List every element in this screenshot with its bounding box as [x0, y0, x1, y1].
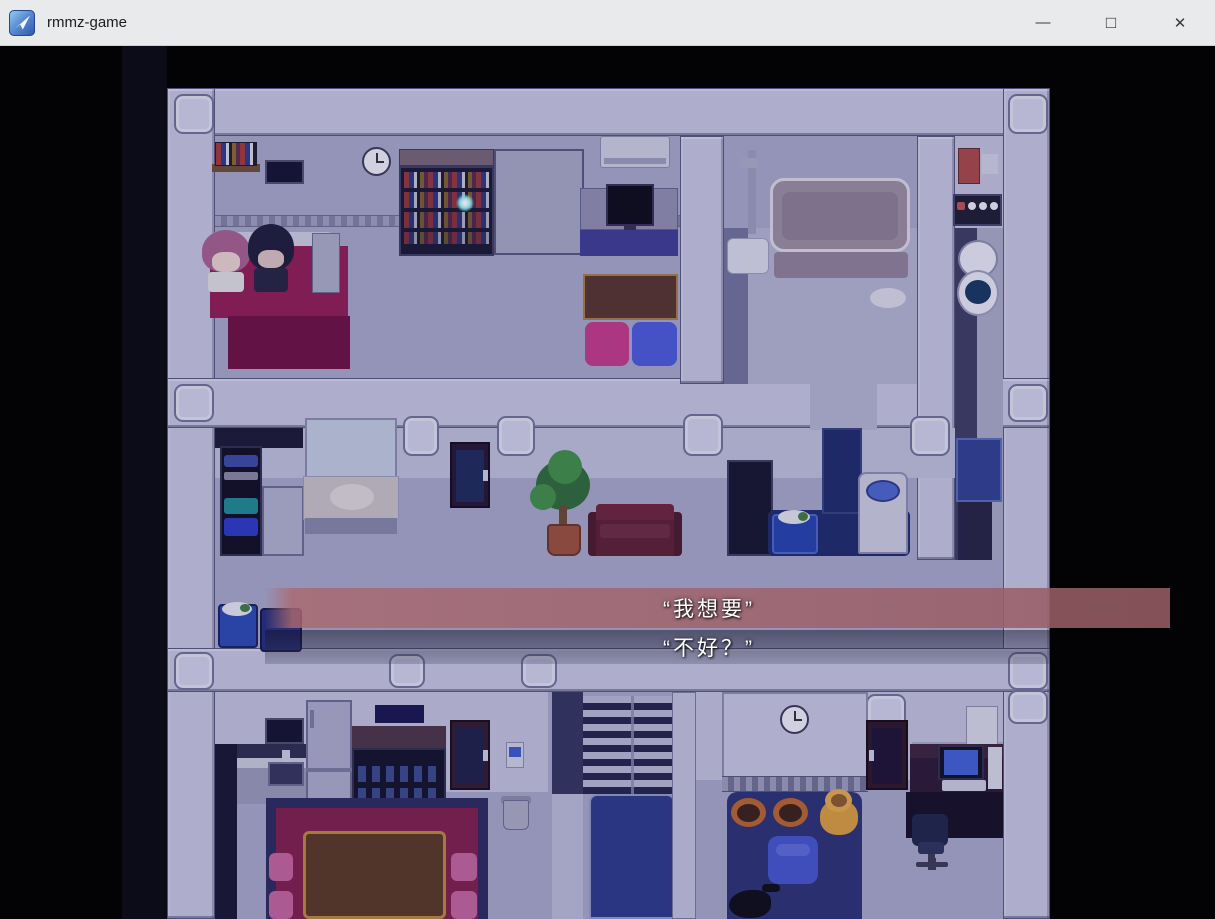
- panel-button: [990, 202, 998, 210]
- stairs-left-wall-dark: [552, 692, 583, 794]
- left-dark-band: [122, 45, 167, 919]
- washroom-cabinet: [262, 486, 304, 556]
- wire-rack: [727, 460, 773, 556]
- dialogue-line-1: “我想要”: [663, 593, 755, 623]
- wall-cap: [683, 414, 723, 456]
- stairs-left-wall-light: [552, 794, 583, 919]
- wall-cap: [403, 416, 439, 456]
- bookshelf-row: [404, 212, 489, 228]
- wall-cap: [1008, 384, 1048, 422]
- plant-pot: [547, 524, 581, 556]
- dresser: [494, 149, 584, 255]
- floor-cushion-blue: [632, 322, 677, 366]
- bath-doorway-tile: [810, 378, 877, 430]
- white-shelf-unit: [966, 706, 998, 748]
- bath-stool: [727, 238, 769, 274]
- bathtub-front: [774, 252, 908, 278]
- sparkle-icon: [456, 194, 474, 212]
- bookshelf-row: [404, 232, 489, 244]
- wall-cap: [174, 384, 214, 422]
- towel: [224, 518, 258, 536]
- bed-side-cabinet: [312, 233, 340, 293]
- kitchen-door-inner: [456, 728, 484, 784]
- bedroom2-door-handle: [869, 750, 874, 761]
- wall-phone-screen: [509, 747, 521, 757]
- toilet-wall-item: [982, 154, 998, 174]
- plant-foliage: [548, 450, 582, 484]
- office-chair-base-leg: [928, 858, 936, 870]
- kitchen-dark-column: [215, 744, 237, 919]
- vanity-sink: [330, 484, 374, 510]
- toilet-cabinet-blue: [956, 438, 1002, 502]
- dish-row: [358, 766, 440, 782]
- shower-head: [740, 158, 758, 168]
- window-title: rmmz-game: [47, 14, 127, 31]
- dark-character-body: [254, 268, 288, 292]
- towel: [224, 455, 258, 467]
- wall-cap: [1008, 94, 1048, 134]
- hall-door-handle: [483, 470, 488, 481]
- bed-lower: [228, 316, 350, 369]
- stairs-steps: [583, 696, 677, 794]
- top-wall: [167, 88, 1050, 136]
- minimize-button[interactable]: —: [1020, 0, 1066, 45]
- app-icon: [9, 10, 35, 36]
- dialogue-line-2: “不好？”: [663, 632, 755, 662]
- wall-cap: [174, 94, 214, 134]
- bedroom2-door-inner: [872, 728, 902, 784]
- keyboard: [942, 780, 986, 791]
- girl-character-body: [208, 272, 244, 292]
- dialogue-banner-1: “我想要”: [265, 588, 1170, 628]
- rug-cushion: [451, 853, 477, 881]
- bookshelf-row: [404, 192, 489, 208]
- stairs-divider: [631, 696, 634, 794]
- trash-bin: [503, 800, 529, 830]
- black-cat-tail: [762, 884, 780, 892]
- rug-cushion: [269, 891, 293, 919]
- panel-button: [979, 202, 987, 210]
- wall-cap: [910, 416, 950, 456]
- dialogue-banner-2: “不好？”: [265, 630, 1050, 664]
- living-table: [303, 831, 446, 919]
- girl-character-face: [212, 252, 240, 272]
- stairs-right-wall: [672, 692, 696, 919]
- bedroom-window: [265, 160, 304, 184]
- inset-grate: [722, 776, 868, 792]
- vanity-drawers: [305, 518, 397, 534]
- dark-character-face: [258, 250, 284, 268]
- bookshelf-row: [404, 172, 489, 188]
- wall-cap: [497, 416, 535, 456]
- kitchen-window: [265, 718, 304, 744]
- hall-door-inner: [456, 450, 484, 502]
- bathtub-inner: [782, 192, 898, 240]
- kitchen-faucet: [282, 750, 290, 762]
- dish-cabinet-top: [352, 726, 446, 748]
- towel: [224, 472, 258, 480]
- computer-desk-front: [580, 230, 678, 256]
- wall-cap: [174, 652, 214, 690]
- toilet-poster: [958, 148, 980, 184]
- floor-cushion-pink: [585, 322, 629, 366]
- monitor-2-screen: [944, 750, 978, 775]
- pot-basket-inner: [779, 804, 802, 822]
- towel: [224, 498, 258, 514]
- vanity-mirror: [305, 418, 397, 478]
- fridge-split: [306, 768, 352, 772]
- monitor: [606, 184, 654, 226]
- low-table-mat: [583, 274, 678, 320]
- left-wall: [167, 88, 215, 919]
- close-button[interactable]: ✕: [1157, 0, 1203, 45]
- wall-clock: [362, 147, 391, 176]
- hall-basket-clothes-green: [240, 604, 250, 612]
- office-chair-seat: [918, 842, 944, 854]
- desk-white-object: [988, 747, 1002, 789]
- bedroom-bath-wall: [680, 136, 724, 384]
- scene-layer: [0, 0, 1215, 919]
- game-screen[interactable]: [0, 45, 1215, 919]
- ac-vent: [604, 158, 666, 164]
- control-panel: [953, 194, 1002, 226]
- toilet-seat-center: [965, 280, 991, 304]
- bookshelf-top: [399, 149, 494, 166]
- wall-cap: [1008, 690, 1048, 724]
- black-cat: [729, 890, 771, 918]
- bath-right-wall: [917, 136, 955, 560]
- kitchen-sink: [268, 762, 304, 786]
- kitchen-wall-panel: [375, 705, 424, 723]
- pot-basket-inner: [737, 804, 760, 822]
- panel-red-light: [957, 202, 965, 210]
- right-wall: [1003, 88, 1050, 919]
- bath-mat: [870, 288, 906, 308]
- toilet-steps: [958, 502, 992, 560]
- plant-foliage: [530, 484, 556, 510]
- washing-machine-lid: [866, 480, 900, 502]
- blue-floor-cushion-highlight: [776, 844, 810, 856]
- teddy-bear-face: [831, 794, 847, 807]
- wall-clock-2: [780, 705, 809, 734]
- wall-shelf-books: [215, 142, 257, 166]
- sofa-cushion: [600, 524, 670, 538]
- kitchen-door-handle: [483, 750, 488, 761]
- laundry-clothes-green: [798, 512, 808, 521]
- rug-cushion: [451, 891, 477, 919]
- maximize-button[interactable]: □: [1088, 0, 1134, 45]
- washroom-dark-nook: [215, 428, 303, 448]
- laundry-door-blue: [822, 428, 862, 514]
- stairs-lower-landing: [589, 794, 675, 919]
- panel-button: [968, 202, 976, 210]
- fridge-handle: [310, 710, 314, 728]
- rug-cushion: [269, 853, 293, 881]
- title-bar[interactable]: rmmz-game — □ ✕: [0, 0, 1215, 46]
